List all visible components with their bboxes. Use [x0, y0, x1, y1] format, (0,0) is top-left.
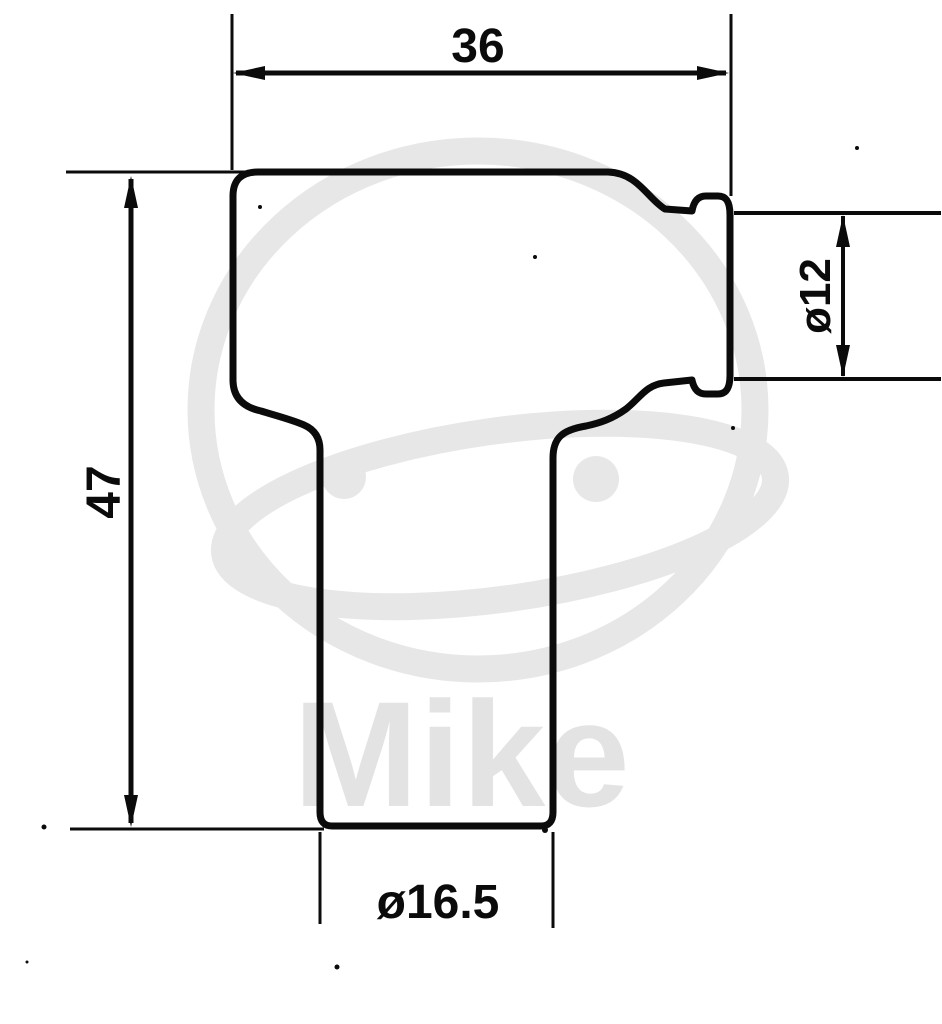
speck [26, 961, 29, 964]
scanned-technical-drawing: Mike 36 47 ø12 ø16.5 [0, 0, 942, 1024]
speck [533, 255, 537, 259]
spark-plug-cap-drawing-canvas: Mike 36 47 ø12 ø16.5 [0, 0, 942, 1024]
dimension-value-left-height: 47 [78, 465, 131, 518]
speck [542, 827, 548, 833]
speck [731, 426, 735, 430]
speck [42, 825, 47, 830]
speck [855, 146, 859, 150]
speck [258, 205, 262, 209]
watermark-left-eye-dot [322, 455, 366, 499]
watermark-text: Mike [293, 670, 630, 838]
speck [335, 965, 340, 970]
dimension-value-stem-diameter: ø16.5 [377, 876, 500, 929]
watermark-right-eye-dot [573, 456, 619, 502]
dimension-value-top-width: 36 [451, 20, 504, 73]
dimension-value-terminal-diameter: ø12 [791, 258, 840, 334]
